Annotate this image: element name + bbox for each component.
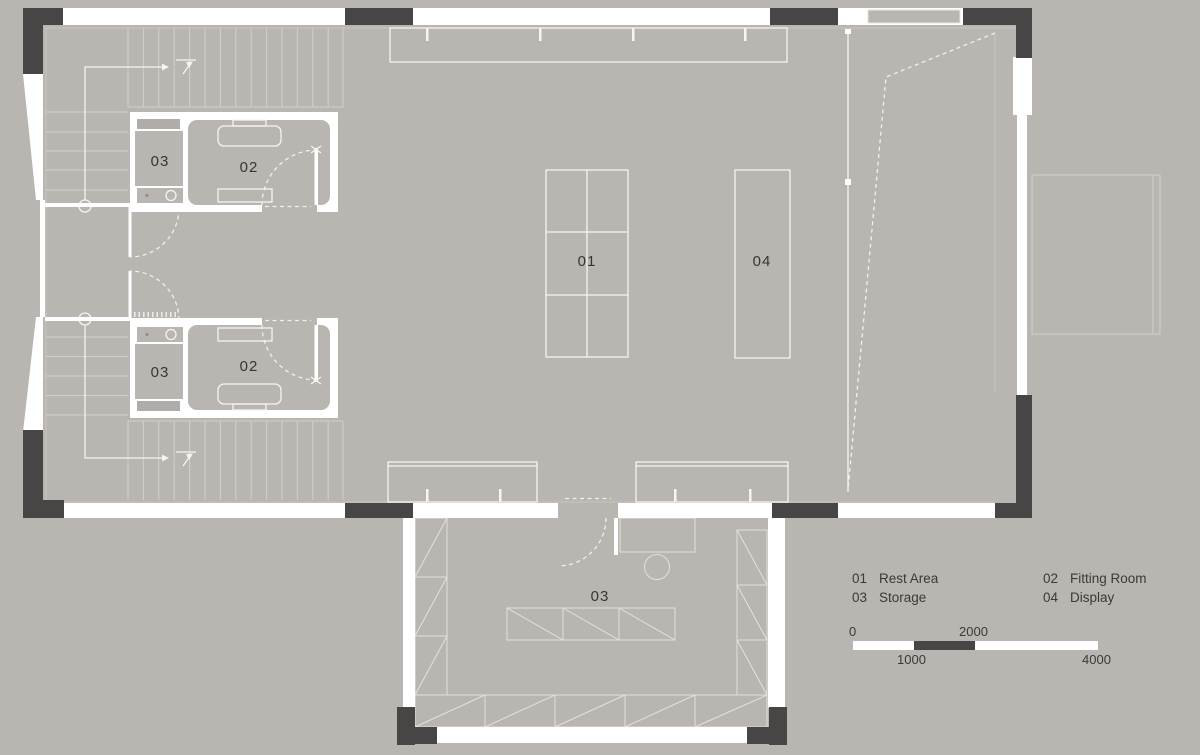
wall-left-middle (40, 200, 45, 317)
legend: 01Rest Area 02Fitting Room 03Storage 04D… (852, 569, 1147, 607)
door-leaf-a (315, 148, 319, 205)
rail-hook (539, 28, 542, 41)
legend-label: Storage (879, 590, 926, 605)
partition-node (845, 179, 851, 185)
window-top-right (868, 10, 960, 23)
legend-num: 04 (1043, 588, 1070, 607)
rail-hook (632, 28, 635, 41)
legend-label: Display (1070, 590, 1114, 605)
storage-wall-right (768, 518, 785, 708)
scale-bar (853, 641, 1098, 650)
shelf-b (137, 401, 180, 411)
drain-a (146, 194, 149, 197)
door-opening-a (262, 203, 317, 212)
legend-num: 02 (1043, 569, 1070, 588)
label-fitting-b: 02 (240, 358, 259, 375)
rail-hook (744, 28, 747, 41)
legend-item-fitting-room: 02Fitting Room (1043, 569, 1147, 588)
glazing-right (1017, 115, 1027, 395)
rail-hook (426, 489, 429, 502)
label-rest-area: 01 (578, 253, 597, 270)
legend-item-rest-area: 01Rest Area (852, 569, 1043, 588)
scale-tick-4000: 4000 (1082, 652, 1111, 667)
door-opening-b (262, 318, 317, 327)
scale-tick-0: 0 (849, 624, 856, 639)
partition-node (845, 29, 851, 34)
label-storage-a: 03 (151, 153, 170, 170)
storage-wall-left (403, 518, 415, 708)
legend-label: Fitting Room (1070, 571, 1147, 586)
scale-bar-segment (914, 641, 975, 650)
scale-tick-2000: 2000 (959, 624, 988, 639)
scale-tick-1000: 1000 (897, 652, 926, 667)
storage-door-opening (558, 503, 618, 518)
label-storage-main: 03 (591, 588, 610, 605)
fitting-room-a-floor (188, 120, 330, 205)
shelf-a (137, 119, 180, 129)
legend-num: 03 (852, 588, 879, 607)
storage-door-leaf (614, 518, 618, 555)
legend-label: Rest Area (879, 571, 938, 586)
rail-hook (674, 489, 677, 502)
legend-num: 01 (852, 569, 879, 588)
drain-b (146, 333, 149, 336)
window-right (1013, 57, 1032, 115)
label-display: 04 (753, 253, 772, 270)
fitting-room-b-floor (188, 325, 330, 410)
legend-item-storage: 03Storage (852, 588, 1043, 607)
wall-bottom (23, 503, 1032, 518)
storage-wall-bottom (437, 727, 747, 743)
rail-hook (426, 28, 429, 41)
label-storage-b: 03 (151, 364, 170, 381)
rail-hook (749, 489, 752, 502)
floor-plan-canvas: 01 04 03 02 03 02 03 01Rest Area 02Fitti… (0, 0, 1200, 755)
legend-item-display: 04Display (1043, 588, 1147, 607)
label-fitting-a: 02 (240, 159, 259, 176)
door-leaf-b (315, 325, 319, 382)
rail-hook (499, 489, 502, 502)
